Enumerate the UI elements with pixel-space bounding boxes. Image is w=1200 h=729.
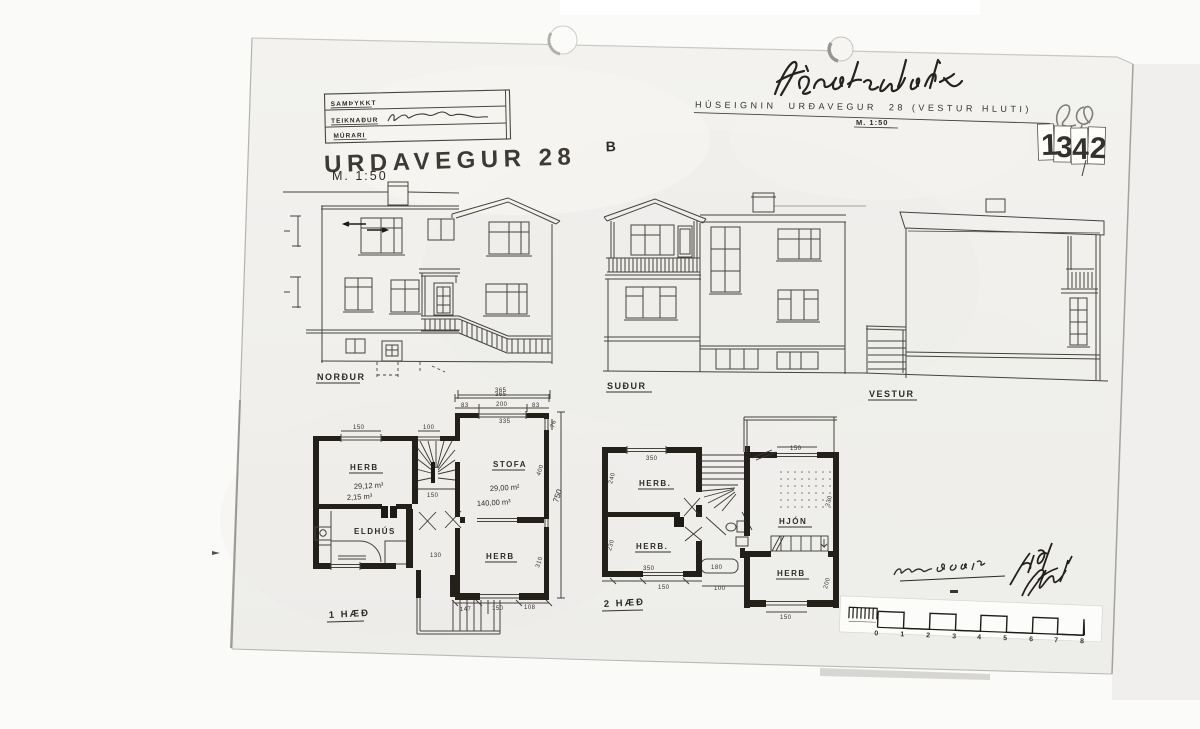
svg-text:180: 180 bbox=[711, 565, 723, 571]
svg-text:108: 108 bbox=[524, 605, 536, 611]
svg-text:0: 0 bbox=[874, 630, 878, 637]
svg-text:7: 7 bbox=[1054, 637, 1058, 644]
svg-text:4: 4 bbox=[977, 634, 981, 641]
svg-text:HERB.: HERB. bbox=[636, 542, 668, 551]
svg-text:29,00 m²: 29,00 m² bbox=[490, 482, 521, 493]
svg-text:HERB: HERB bbox=[777, 569, 806, 578]
svg-text:350: 350 bbox=[643, 566, 655, 572]
svg-text:3: 3 bbox=[952, 633, 956, 640]
svg-text:3: 3 bbox=[1056, 131, 1073, 164]
svg-text:350: 350 bbox=[646, 456, 658, 462]
svg-text:M. 1:50: M. 1:50 bbox=[856, 118, 888, 127]
svg-text:NORÐUR: NORÐUR bbox=[317, 372, 366, 382]
svg-text:335: 335 bbox=[499, 419, 511, 425]
svg-text:29,12 m³: 29,12 m³ bbox=[354, 480, 385, 491]
svg-text:2 HÆÐ: 2 HÆÐ bbox=[604, 597, 646, 610]
svg-text:1: 1 bbox=[900, 631, 904, 638]
svg-text:2: 2 bbox=[926, 632, 930, 639]
svg-text:HERB: HERB bbox=[350, 463, 379, 472]
svg-text:83: 83 bbox=[461, 403, 469, 409]
svg-text:HERB: HERB bbox=[486, 552, 515, 561]
svg-text:2,15 m³: 2,15 m³ bbox=[347, 492, 373, 502]
svg-text:150: 150 bbox=[427, 493, 439, 499]
svg-text:5: 5 bbox=[1003, 635, 1007, 642]
svg-text:VESTUR: VESTUR bbox=[869, 389, 915, 399]
svg-text:STOFA: STOFA bbox=[493, 460, 527, 469]
svg-text:150: 150 bbox=[790, 446, 802, 452]
svg-text:4: 4 bbox=[1072, 133, 1090, 166]
svg-text:HERB.: HERB. bbox=[639, 479, 671, 488]
svg-text:130: 130 bbox=[430, 553, 442, 559]
svg-text:SUÐUR: SUÐUR bbox=[607, 381, 647, 391]
svg-text:1 HÆÐ: 1 HÆÐ bbox=[329, 608, 371, 621]
svg-text:ELDHÚS: ELDHÚS bbox=[354, 527, 396, 536]
svg-text:150: 150 bbox=[658, 585, 670, 591]
svg-text:150: 150 bbox=[780, 615, 792, 621]
svg-text:140,00 m³: 140,00 m³ bbox=[477, 497, 512, 508]
svg-text:100: 100 bbox=[423, 425, 435, 431]
svg-text:100: 100 bbox=[714, 586, 726, 592]
svg-text:147: 147 bbox=[460, 606, 472, 613]
svg-text:B: B bbox=[605, 138, 616, 154]
svg-text:200: 200 bbox=[496, 402, 508, 408]
svg-text:6: 6 bbox=[1029, 636, 1033, 643]
svg-text:365: 365 bbox=[495, 392, 507, 398]
svg-text:HJÓN: HJÓN bbox=[779, 517, 807, 526]
svg-text:2: 2 bbox=[1089, 132, 1107, 166]
svg-text:83: 83 bbox=[532, 403, 540, 409]
svg-text:M. 1:50: M. 1:50 bbox=[332, 169, 388, 183]
svg-text:8: 8 bbox=[1080, 638, 1084, 645]
svg-text:150: 150 bbox=[353, 425, 365, 431]
